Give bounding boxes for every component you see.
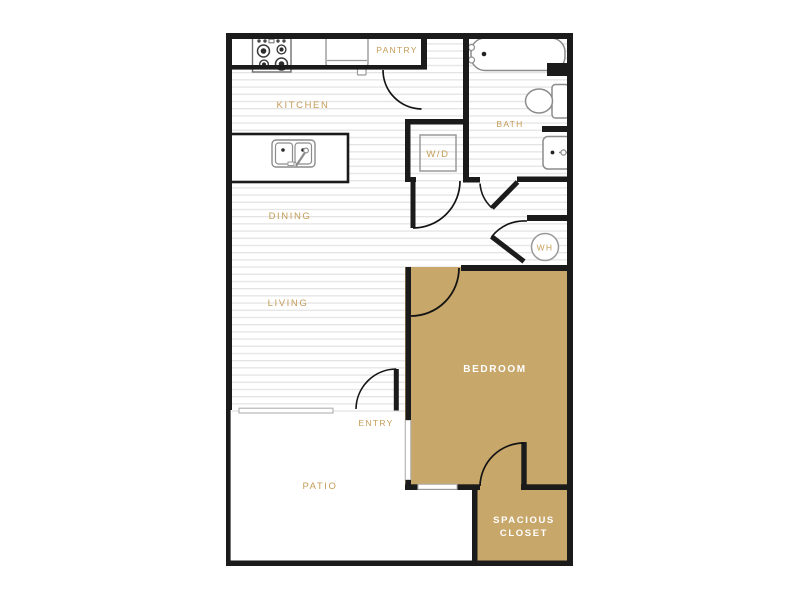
living-south-window xyxy=(239,408,333,413)
wall-patio-left xyxy=(226,410,231,566)
entry-label: ENTRY xyxy=(358,418,393,428)
pantry-label: PANTRY xyxy=(376,45,418,55)
wh-label: WH xyxy=(537,243,554,253)
bedroom-label: BEDROOM xyxy=(463,364,526,375)
wall-bath-west xyxy=(463,36,469,182)
bath-label: BATH xyxy=(496,119,523,129)
patio-label: PATIO xyxy=(302,481,337,492)
wall-wh-top xyxy=(527,215,573,221)
island-sink-icon xyxy=(272,140,315,167)
wall-top xyxy=(226,33,573,39)
wall-wd-west xyxy=(405,119,411,182)
bathroom-sink-icon xyxy=(543,137,571,170)
bedroom-west-window xyxy=(405,420,410,480)
entry-door-leaf xyxy=(394,369,399,411)
wd-door-leaf xyxy=(411,182,416,228)
floorplan-drawing: KITCHEN PANTRY BATH W/D DINING LIVING WH… xyxy=(0,0,800,600)
living-label: LIVING xyxy=(268,298,309,309)
wall-pantry-nook-west xyxy=(421,36,427,67)
closet-door-leaf xyxy=(521,442,526,487)
closet-label-line2: CLOSET xyxy=(500,528,548,539)
wall-tub-stub xyxy=(547,63,573,76)
wall-closet-west xyxy=(472,487,478,563)
kitchen-label: KITCHEN xyxy=(277,100,330,111)
floorplan-canvas: KITCHEN PANTRY BATH W/D DINING LIVING WH… xyxy=(0,0,800,600)
wall-kitchen-counter xyxy=(232,65,427,70)
wall-bottom xyxy=(226,561,573,567)
wall-bedroom-top xyxy=(461,265,573,271)
bedroom-floor xyxy=(405,267,567,489)
wall-wd-top xyxy=(405,119,469,125)
closet-label-line1: SPACIOUS xyxy=(493,515,555,526)
wall-bath-south-right xyxy=(517,177,573,183)
wall-sink-stub xyxy=(542,126,573,132)
wall-bath-south-left xyxy=(463,177,480,183)
dining-label: DINING xyxy=(269,211,312,222)
wall-wd-west-foot xyxy=(405,177,416,182)
wd-label: W/D xyxy=(426,149,449,160)
wall-bedroom-west xyxy=(406,267,412,420)
bedroom-south-window xyxy=(418,484,457,489)
wall-bedroom-south-right xyxy=(521,484,573,490)
wall-left xyxy=(226,33,232,410)
kitchen-island xyxy=(228,134,348,182)
